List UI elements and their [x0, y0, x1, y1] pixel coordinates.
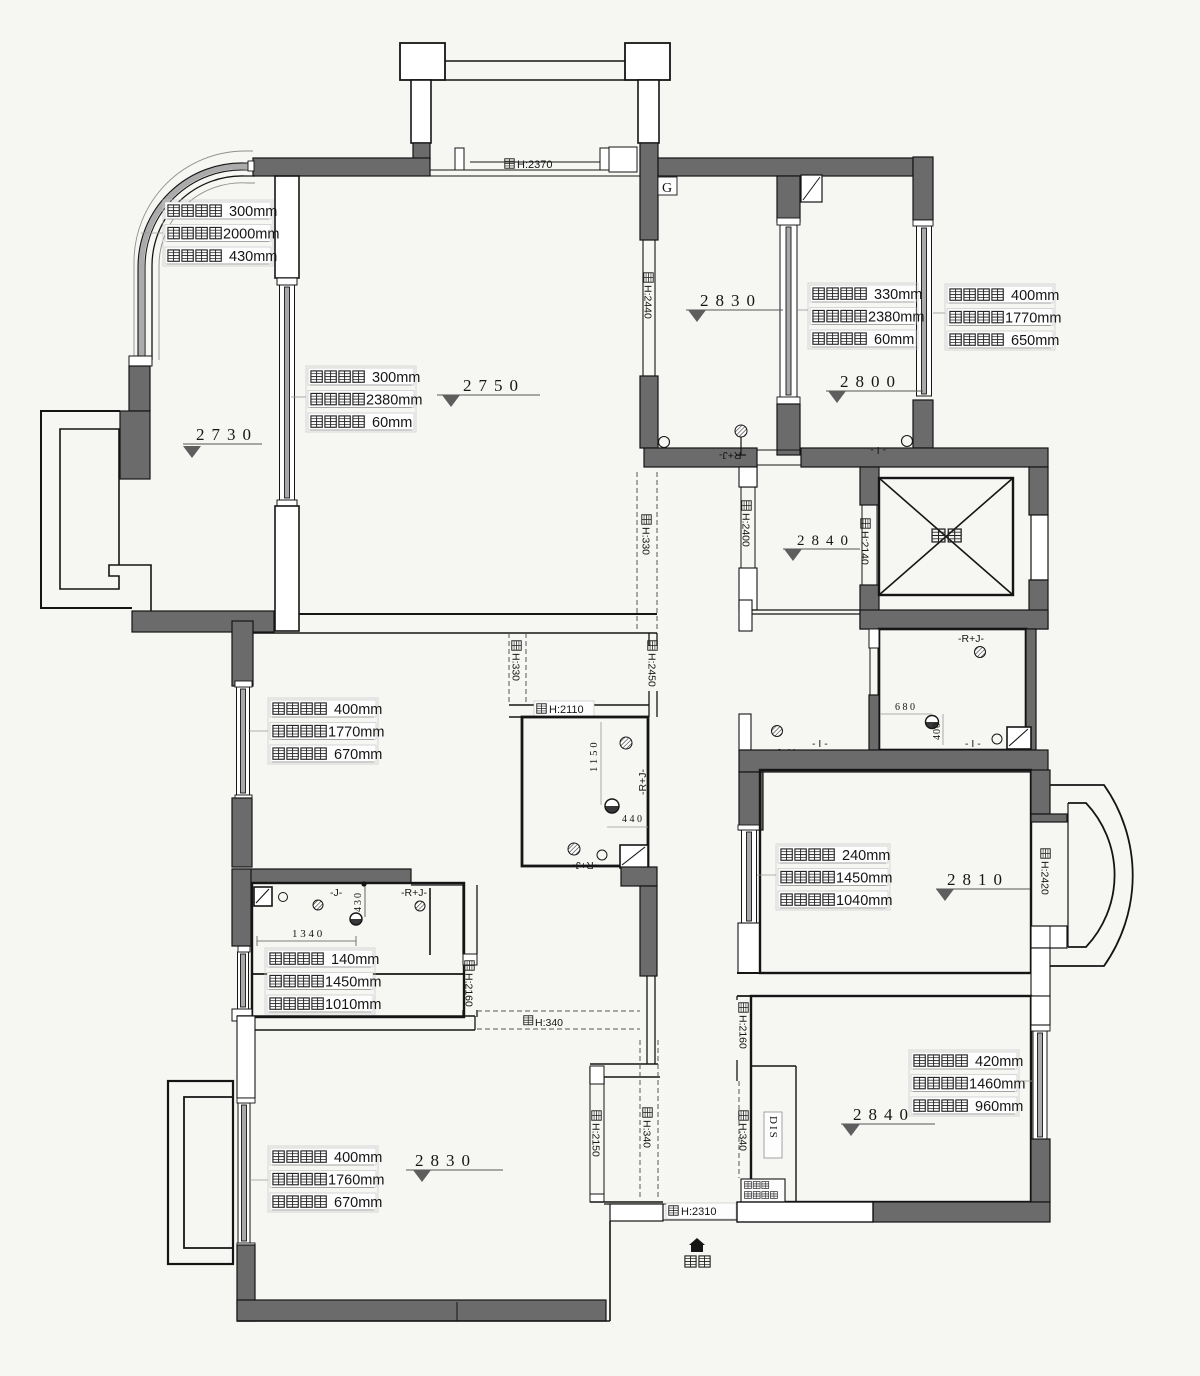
svg-text:H:2450: H:2450: [646, 653, 658, 687]
svg-text:H:2420: H:2420: [1039, 861, 1051, 895]
svg-text:650mm: 650mm: [1011, 333, 1059, 349]
svg-text:H:2160: H:2160: [737, 1015, 749, 1049]
svg-text:1040mm: 1040mm: [836, 893, 892, 909]
svg-text:H:330: H:330: [640, 527, 652, 555]
svg-text:430mm: 430mm: [229, 249, 277, 265]
svg-text:2830: 2830: [415, 1151, 477, 1170]
svg-text:2840: 2840: [853, 1105, 915, 1124]
svg-text:1770mm: 1770mm: [328, 725, 384, 741]
svg-text:H:340: H:340: [737, 1123, 749, 1151]
svg-text:-R+J-: -R+J-: [572, 859, 597, 870]
svg-text:H:2370: H:2370: [517, 159, 552, 171]
svg-text:H:2110: H:2110: [549, 704, 584, 716]
svg-text:-R+J-: -R+J-: [719, 449, 745, 461]
svg-text:2800: 2800: [840, 372, 902, 391]
svg-text:400mm: 400mm: [334, 702, 382, 718]
svg-text:H:2140: H:2140: [859, 531, 871, 565]
svg-text:2380mm: 2380mm: [366, 393, 422, 409]
svg-text:-R+J-: -R+J-: [958, 633, 984, 645]
svg-text:60mm: 60mm: [874, 332, 914, 348]
svg-text:240mm: 240mm: [842, 848, 890, 864]
svg-text:- I -: - I -: [812, 738, 828, 750]
svg-text:H:330: H:330: [510, 653, 522, 681]
svg-text:1450mm: 1450mm: [325, 975, 381, 991]
svg-text:-R+J-: -R+J-: [637, 769, 649, 795]
svg-text:H:340: H:340: [535, 1017, 563, 1029]
svg-text:6 8 0: 6 8 0: [895, 702, 915, 713]
svg-text:300mm: 300mm: [229, 204, 277, 220]
svg-text:1760mm: 1760mm: [328, 1173, 384, 1189]
svg-text:670mm: 670mm: [334, 747, 382, 763]
svg-text:670mm: 670mm: [334, 1195, 382, 1211]
svg-text:H:340: H:340: [641, 1120, 653, 1148]
svg-text:- I -: - I -: [870, 444, 886, 456]
svg-text:H:2160: H:2160: [463, 973, 475, 1007]
svg-text:2000mm: 2000mm: [223, 227, 279, 243]
svg-text:140mm: 140mm: [331, 952, 379, 968]
svg-text:2750: 2750: [463, 376, 525, 395]
svg-text:2380mm: 2380mm: [868, 310, 924, 326]
svg-text:400mm: 400mm: [1011, 288, 1059, 304]
svg-text:400mm: 400mm: [334, 1150, 382, 1166]
svg-text:420mm: 420mm: [975, 1054, 1023, 1070]
svg-text:1460mm: 1460mm: [969, 1077, 1025, 1093]
svg-text:1010mm: 1010mm: [325, 997, 381, 1013]
svg-text:2840: 2840: [797, 533, 855, 549]
svg-text:DIS: DIS: [767, 1116, 779, 1140]
svg-text:-R+J-: -R+J-: [401, 887, 427, 899]
svg-text:1150: 1150: [589, 739, 600, 772]
svg-text:H:2150: H:2150: [590, 1123, 602, 1157]
svg-text:- I -: - I -: [965, 738, 981, 750]
svg-text:H:2440: H:2440: [642, 285, 654, 319]
svg-text:G: G: [662, 181, 672, 196]
svg-text:400: 400: [932, 722, 943, 740]
svg-text:430: 430: [353, 891, 364, 912]
svg-text:1450mm: 1450mm: [836, 871, 892, 887]
svg-text:H:2400: H:2400: [740, 513, 752, 547]
svg-text:300mm: 300mm: [372, 370, 420, 386]
svg-text:H:2310: H:2310: [681, 1206, 716, 1218]
svg-text:2830: 2830: [700, 291, 762, 310]
svg-text:4 4 0: 4 4 0: [622, 814, 642, 825]
svg-text:330mm: 330mm: [874, 287, 922, 303]
svg-text:2730: 2730: [196, 425, 258, 444]
svg-text:-J-: -J-: [330, 887, 343, 899]
svg-text:2810: 2810: [947, 870, 1009, 889]
svg-text:1 3 4 0: 1 3 4 0: [292, 928, 323, 940]
svg-text:960mm: 960mm: [975, 1099, 1023, 1115]
svg-text:1770mm: 1770mm: [1005, 311, 1061, 327]
svg-text:60mm: 60mm: [372, 415, 412, 431]
